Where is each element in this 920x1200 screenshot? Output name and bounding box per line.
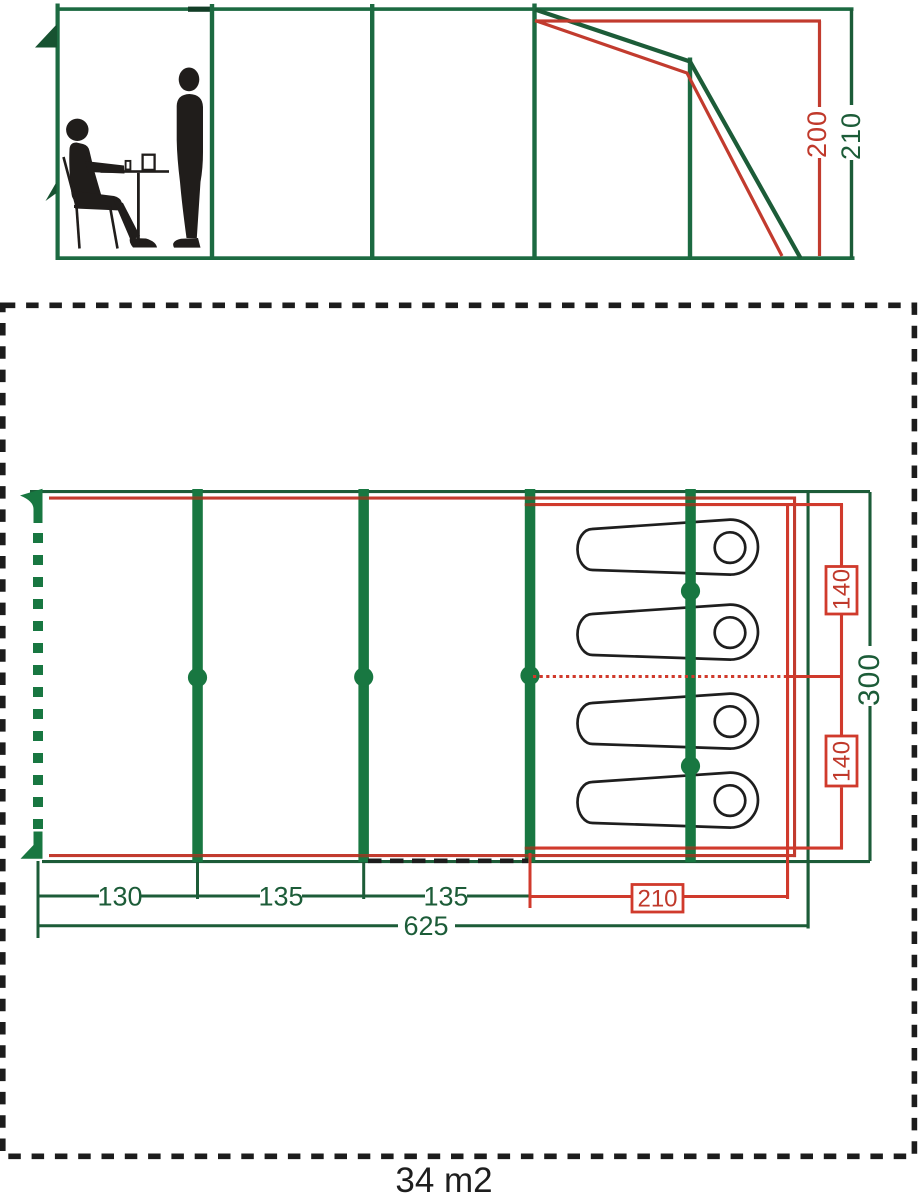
svg-text:135: 135 [258, 882, 303, 912]
svg-text:34 m2: 34 m2 [395, 1161, 492, 1200]
svg-text:135: 135 [423, 882, 468, 912]
svg-text:210: 210 [637, 886, 677, 913]
svg-text:200: 200 [802, 110, 832, 158]
svg-text:300: 300 [853, 653, 886, 706]
svg-text:130: 130 [97, 882, 142, 912]
svg-text:140: 140 [829, 740, 856, 782]
svg-text:210: 210 [836, 112, 866, 160]
svg-text:625: 625 [403, 911, 448, 941]
svg-text:140: 140 [829, 568, 856, 610]
